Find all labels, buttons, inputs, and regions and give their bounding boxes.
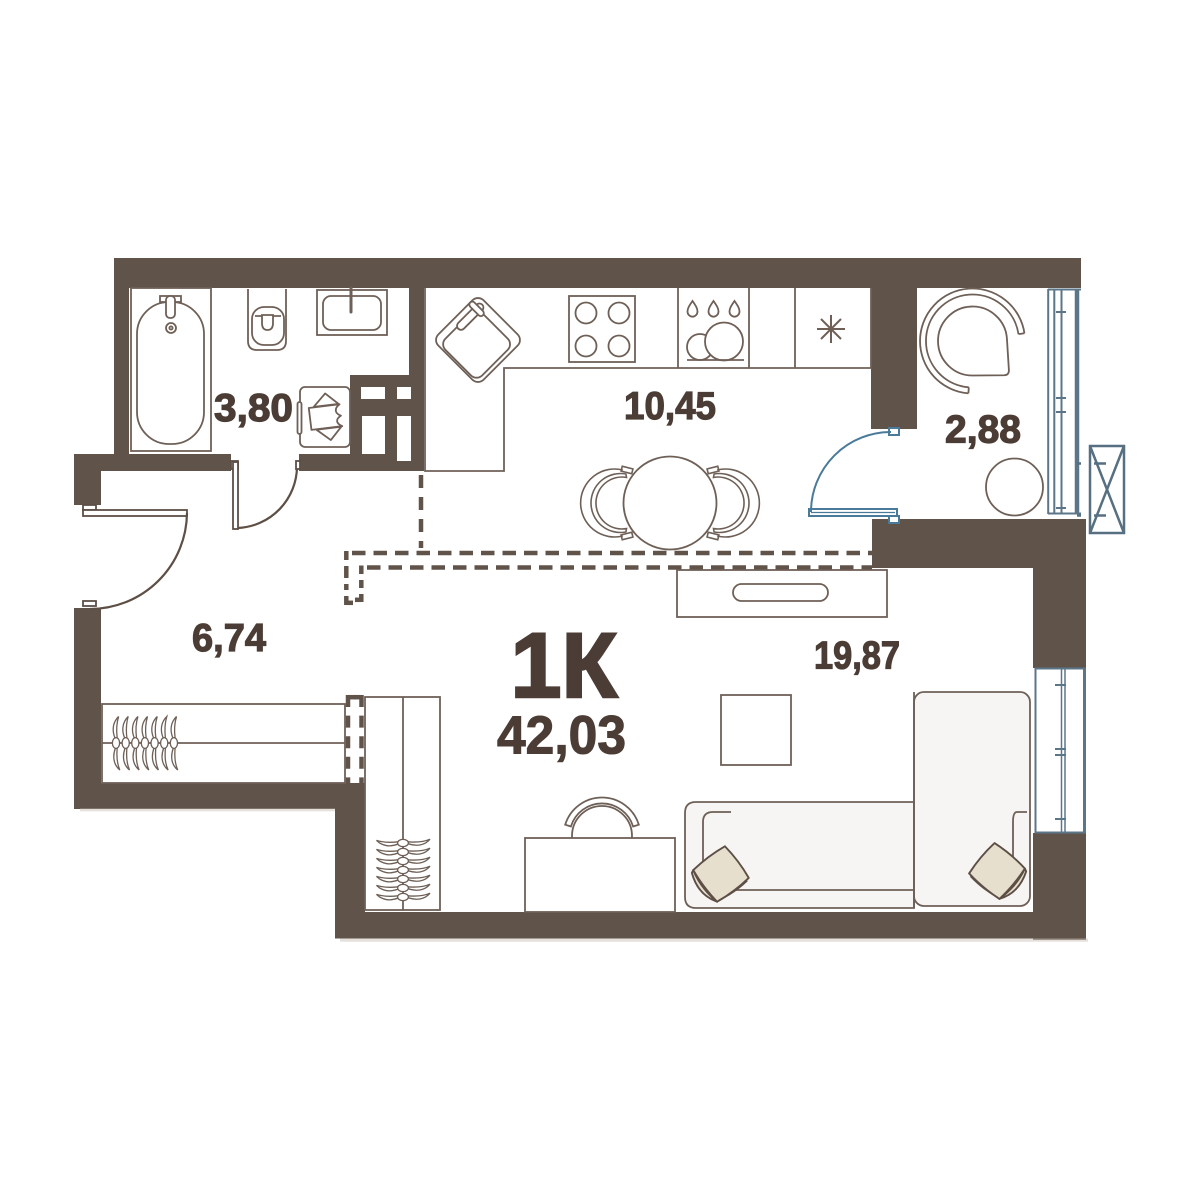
svg-text:19,87: 19,87	[814, 635, 900, 678]
svg-text:10,45: 10,45	[624, 385, 716, 428]
svg-text:3,80: 3,80	[214, 387, 293, 430]
svg-text:6,74: 6,74	[192, 617, 266, 660]
svg-text:42,03: 42,03	[497, 706, 626, 766]
svg-text:1К: 1К	[511, 615, 619, 717]
svg-text:2,88: 2,88	[945, 409, 1021, 452]
